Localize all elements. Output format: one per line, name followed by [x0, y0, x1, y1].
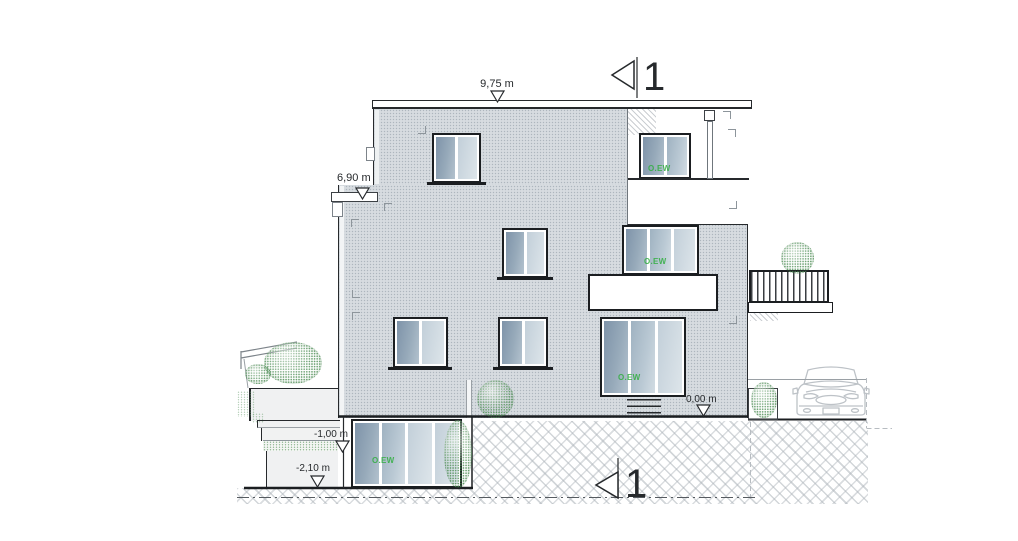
- bush-icon: [751, 382, 777, 418]
- section-number-bottom: 1: [625, 464, 647, 504]
- dim-ground: 0,00 m: [686, 394, 717, 405]
- window-tag-basement: O.EW: [372, 456, 395, 465]
- section-number-top: 1: [643, 57, 665, 97]
- bush-icon: [781, 242, 814, 274]
- dim-roof: 9,75 m: [472, 78, 522, 90]
- dim-setback: 6,90 m: [337, 172, 371, 184]
- bush-icon: [245, 364, 271, 384]
- window-tag-attic: O.EW: [648, 164, 671, 173]
- elevation-drawing: 9,75 m 6,90 m 0,00 m -1,00 m -2,10 m 1 1…: [0, 0, 1018, 541]
- dim-terrace-mid: -1,00 m: [314, 429, 348, 440]
- window-tag-ground: O.EW: [618, 373, 641, 382]
- bush-icon: [444, 420, 472, 488]
- window-tag-middle: O.EW: [644, 257, 667, 266]
- level-triangle-icon: [311, 91, 710, 487]
- bush-icon: [264, 342, 322, 384]
- dim-terrace-low: -2,10 m: [296, 463, 330, 474]
- bush-icon: [477, 380, 514, 418]
- section-flag-icon: [596, 57, 637, 498]
